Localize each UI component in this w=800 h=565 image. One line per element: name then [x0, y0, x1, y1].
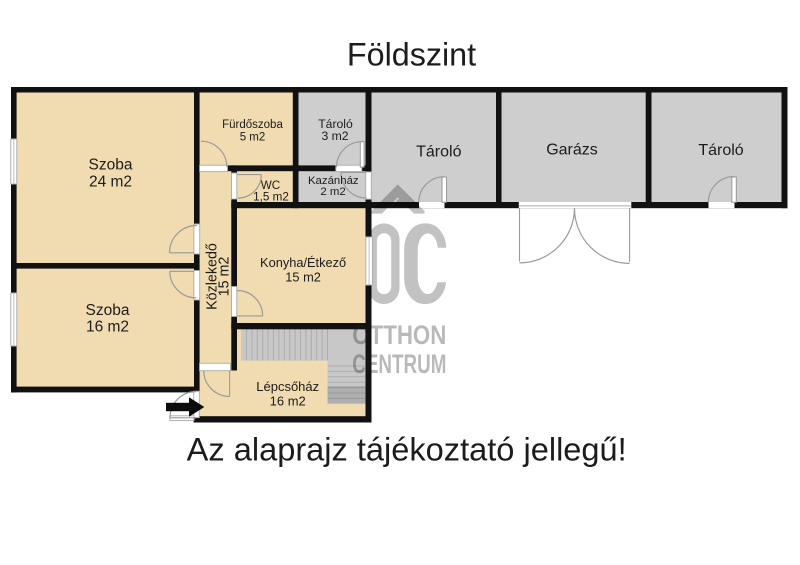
- svg-text:15 m2: 15 m2: [285, 269, 321, 284]
- svg-text:Szoba: Szoba: [89, 156, 133, 173]
- svg-text:Szoba: Szoba: [86, 302, 130, 319]
- svg-text:2 m2: 2 m2: [320, 186, 345, 198]
- svg-text:Tároló: Tároló: [698, 142, 743, 159]
- svg-text:Tároló: Tároló: [416, 143, 461, 160]
- svg-text:Garázs: Garázs: [546, 142, 598, 159]
- svg-text:16 m2: 16 m2: [86, 319, 129, 336]
- svg-text:Lépcsőház: Lépcsőház: [256, 379, 319, 394]
- svg-text:15 m2: 15 m2: [216, 257, 232, 297]
- svg-text:Az alaprajz tájékoztató jelleg: Az alaprajz tájékoztató jellegű!: [187, 431, 627, 468]
- svg-text:24 m2: 24 m2: [89, 174, 132, 191]
- svg-text:16 m2: 16 m2: [270, 393, 306, 408]
- svg-text:5 m2: 5 m2: [240, 131, 266, 143]
- svg-text:OTTHON: OTTHON: [352, 320, 446, 350]
- svg-text:Fürdőszoba: Fürdőszoba: [222, 119, 283, 131]
- svg-text:1,5 m2: 1,5 m2: [253, 190, 289, 203]
- svg-text:Konyha/Étkező: Konyha/Étkező: [260, 255, 346, 270]
- svg-text:3 m2: 3 m2: [321, 129, 348, 143]
- svg-text:CENTRUM: CENTRUM: [352, 349, 446, 379]
- svg-text:Földszint: Földszint: [347, 37, 476, 73]
